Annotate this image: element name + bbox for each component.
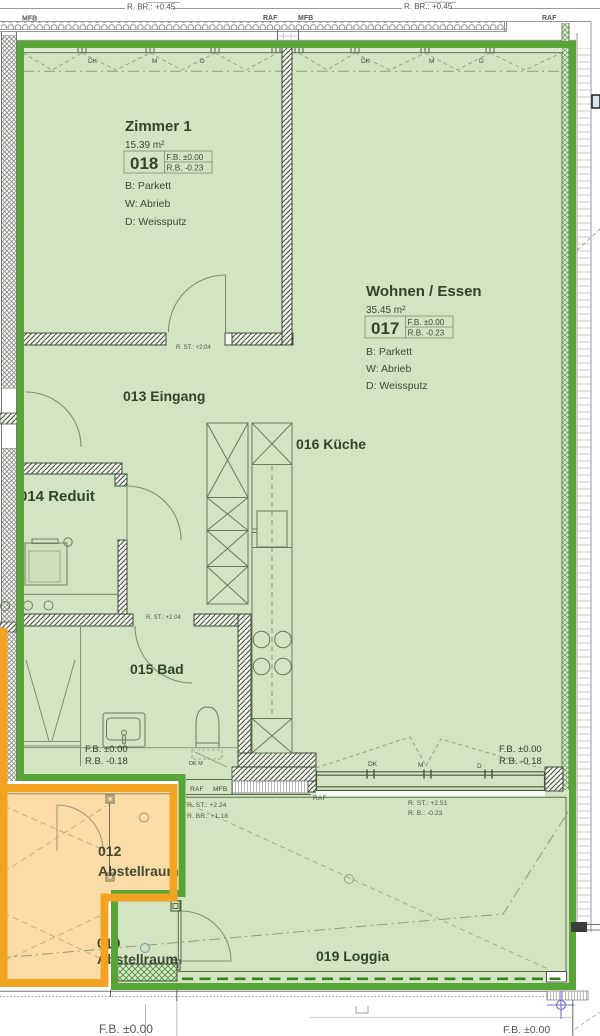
- svg-text:RAF: RAF: [190, 786, 204, 793]
- svg-text:R. ST.: +2.04: R. ST.: +2.04: [146, 615, 182, 621]
- svg-text:F.B. ±0.00: F.B. ±0.00: [167, 153, 204, 162]
- svg-text:015 Bad: 015 Bad: [130, 661, 184, 677]
- svg-text:Abstellraum: Abstellraum: [97, 951, 178, 967]
- svg-text:018: 018: [130, 154, 158, 173]
- svg-text:RAF: RAF: [313, 795, 327, 802]
- svg-text:15.39 m²: 15.39 m²: [125, 140, 165, 151]
- svg-text:F.B. ±0.00: F.B. ±0.00: [99, 1022, 153, 1036]
- svg-text:Abstellraum: Abstellraum: [98, 863, 179, 879]
- svg-text:R.B. -0.23: R.B. -0.23: [167, 164, 204, 173]
- svg-text:F.B. ±0.00: F.B. ±0.00: [85, 744, 128, 755]
- svg-text:DK M: DK M: [189, 761, 203, 767]
- svg-text:D: Weissputz: D: Weissputz: [366, 380, 428, 392]
- svg-text:R.B. -0.18: R.B. -0.18: [499, 756, 542, 767]
- svg-text:MFB: MFB: [22, 16, 37, 23]
- svg-text:D: D: [477, 763, 482, 770]
- svg-text:B: Parkett: B: Parkett: [366, 346, 412, 358]
- svg-text:R. B.: -0.23: R. B.: -0.23: [408, 810, 443, 817]
- svg-text:M: M: [418, 762, 423, 769]
- svg-text:016 Küche: 016 Küche: [296, 436, 366, 452]
- svg-text:MFB: MFB: [213, 786, 228, 793]
- svg-text:DK: DK: [88, 58, 98, 65]
- svg-text:R.B. -0.18: R.B. -0.18: [85, 756, 128, 767]
- svg-text:013 Eingang: 013 Eingang: [123, 388, 205, 404]
- svg-text:Zimmer 1: Zimmer 1: [125, 118, 192, 135]
- svg-text:F.B. ±0.00: F.B. ±0.00: [503, 1024, 550, 1036]
- svg-text:F.B. ±0.00: F.B. ±0.00: [408, 318, 445, 327]
- svg-text:R. BR.: +0.45: R. BR.: +0.45: [127, 3, 176, 12]
- svg-text:R. ST.: +2.24: R. ST.: +2.24: [187, 802, 227, 809]
- svg-text:RAF: RAF: [263, 15, 278, 22]
- svg-text:35.45 m²: 35.45 m²: [366, 305, 406, 316]
- svg-text:RAF: RAF: [542, 15, 557, 22]
- svg-text:017: 017: [371, 319, 399, 338]
- svg-text:D: D: [200, 58, 205, 65]
- svg-text:DK: DK: [361, 58, 371, 65]
- svg-text:014 Reduit: 014 Reduit: [19, 488, 95, 505]
- svg-text:R. ST.: +2.51: R. ST.: +2.51: [408, 800, 448, 807]
- svg-text:W: Abrieb: W: Abrieb: [366, 363, 411, 375]
- svg-text:019 Loggia: 019 Loggia: [316, 948, 389, 964]
- svg-text:R. BR.: +0.45: R. BR.: +0.45: [404, 2, 453, 11]
- svg-text:D: Weissputz: D: Weissputz: [125, 216, 187, 228]
- svg-text:M: M: [429, 58, 434, 65]
- svg-text:R. BR.: +1.18: R. BR.: +1.18: [187, 813, 228, 820]
- svg-text:R.B. -0.23: R.B. -0.23: [408, 329, 445, 338]
- svg-text:B: Parkett: B: Parkett: [125, 180, 171, 192]
- svg-text:W: Abrieb: W: Abrieb: [125, 198, 170, 210]
- svg-text:D: D: [479, 58, 484, 65]
- svg-text:MFB: MFB: [298, 15, 313, 22]
- svg-text:Wohnen / Essen: Wohnen / Essen: [366, 283, 482, 300]
- svg-text:M: M: [152, 58, 157, 65]
- svg-text:F.B. ±0.00: F.B. ±0.00: [499, 744, 542, 755]
- svg-text:R. ST.: +2.04: R. ST.: +2.04: [176, 345, 212, 351]
- svg-text:012: 012: [98, 843, 122, 859]
- svg-text:DK: DK: [368, 761, 378, 768]
